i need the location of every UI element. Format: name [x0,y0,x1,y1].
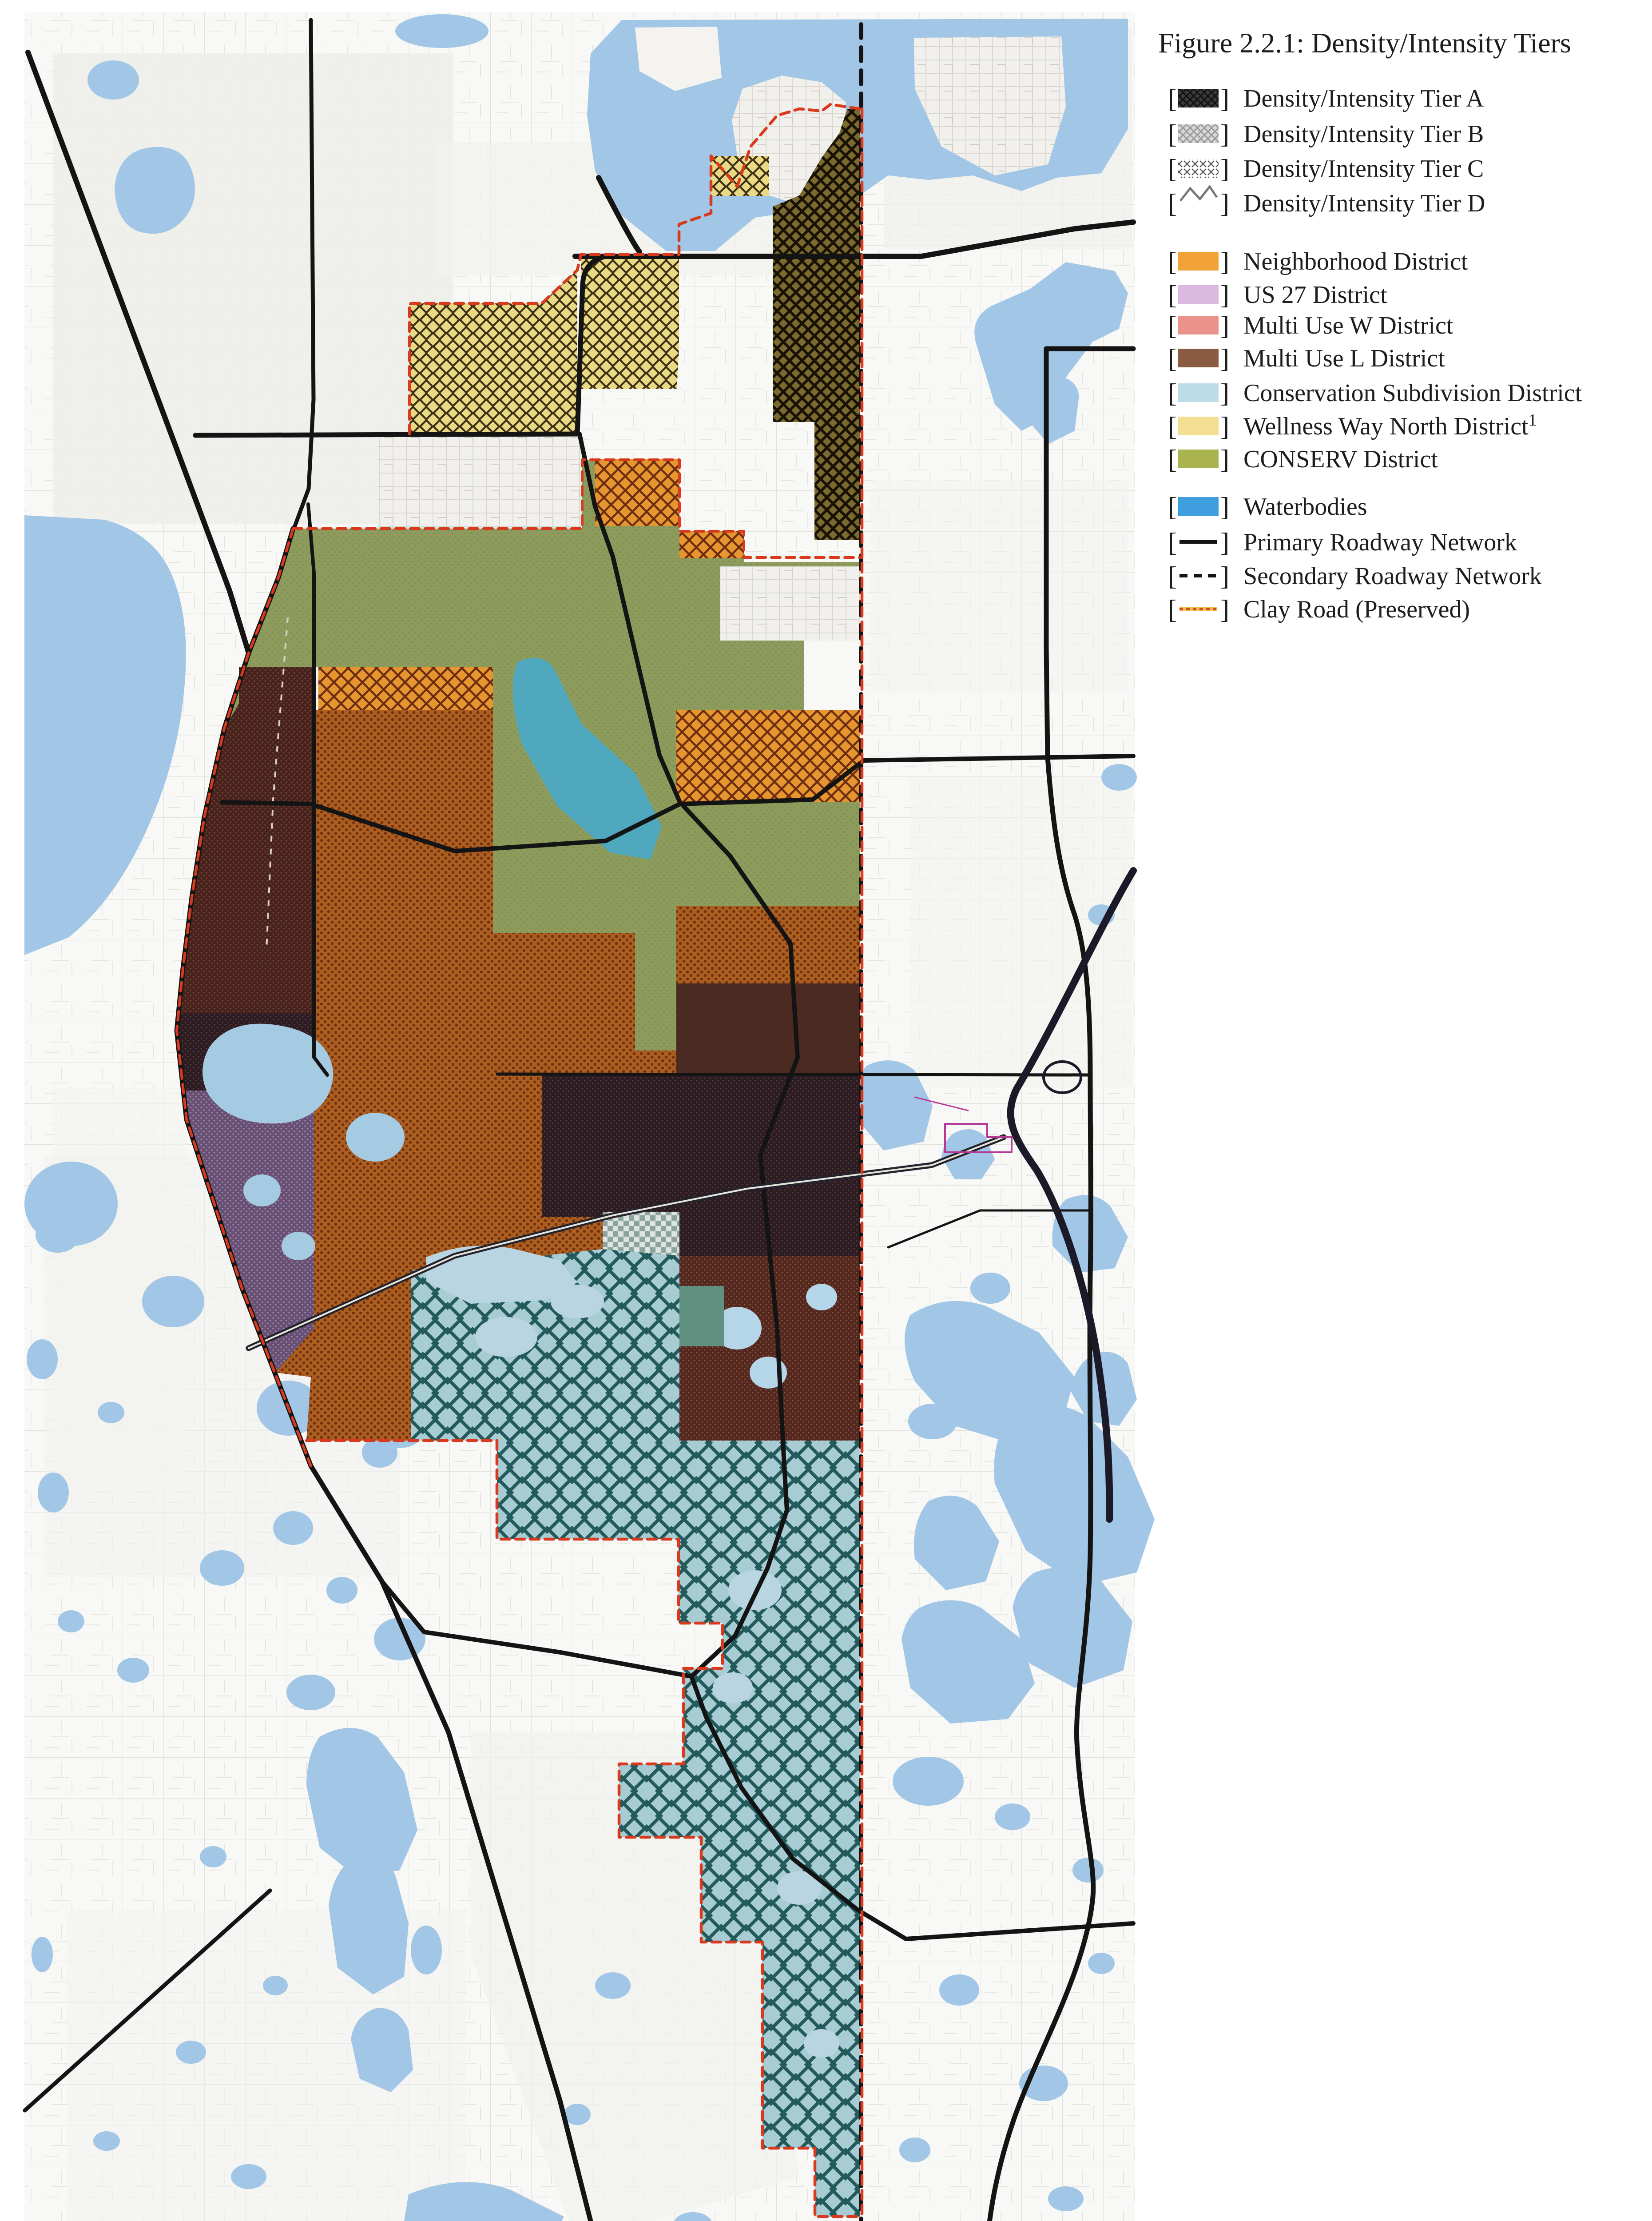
svg-text:Neighborhood District: Neighborhood District [1243,248,1468,275]
svg-text:]: ] [1220,280,1229,310]
svg-text:[: [ [1168,378,1177,408]
svg-text:[: [ [1168,344,1177,373]
svg-text:[: [ [1168,119,1177,149]
svg-text:Secondary Roadway Network: Secondary Roadway Network [1243,562,1542,590]
svg-text:]: ] [1220,247,1229,276]
svg-text:[: [ [1168,154,1177,183]
svg-text:[: [ [1168,84,1177,113]
svg-text:CONSERV District: CONSERV District [1243,446,1438,473]
svg-text:[: [ [1168,280,1177,310]
svg-text:[: [ [1168,311,1177,340]
svg-text:Density/Intensity Tier B: Density/Intensity Tier B [1243,120,1484,148]
svg-text:]: ] [1220,412,1229,441]
svg-text:]: ] [1220,311,1229,340]
svg-text:]: ] [1220,561,1229,591]
svg-text:Density/Intensity Tier C: Density/Intensity Tier C [1243,155,1484,183]
svg-text:Figure 2.2.1: Density/Intensit: Figure 2.2.1: Density/Intensity Tiers [1158,27,1571,59]
svg-text:]: ] [1220,595,1229,624]
svg-text:]: ] [1220,154,1229,183]
svg-text:Multi Use W District: Multi Use W District [1243,312,1453,339]
svg-text:Conservation Subdivision Distr: Conservation Subdivision District [1243,379,1582,407]
svg-text:]: ] [1220,189,1229,218]
svg-text:Wellness Way North District1: Wellness Way North District1 [1243,411,1537,440]
svg-text:[: [ [1168,561,1177,591]
svg-text:]: ] [1220,378,1229,408]
svg-text:Primary Roadway Network: Primary Roadway Network [1243,529,1517,556]
svg-text:]: ] [1220,528,1229,557]
svg-text:Waterbodies: Waterbodies [1243,493,1367,521]
svg-text:US 27 District: US 27 District [1243,281,1387,309]
svg-text:[: [ [1168,247,1177,276]
svg-text:[: [ [1168,189,1177,218]
svg-text:]: ] [1220,344,1229,373]
svg-text:[: [ [1168,445,1177,474]
svg-text:Multi Use L District: Multi Use L District [1243,345,1445,372]
svg-text:[: [ [1168,528,1177,557]
svg-text:[: [ [1168,595,1177,624]
svg-text:]: ] [1220,119,1229,149]
svg-text:[: [ [1168,492,1177,521]
svg-text:Clay Road (Preserved): Clay Road (Preserved) [1243,596,1470,623]
svg-text:]: ] [1220,492,1229,521]
svg-text:Density/Intensity Tier D: Density/Intensity Tier D [1243,190,1485,217]
svg-text:]: ] [1220,84,1229,113]
svg-text:[: [ [1168,412,1177,441]
svg-text:Density/Intensity Tier A: Density/Intensity Tier A [1243,85,1484,112]
svg-text:]: ] [1220,445,1229,474]
